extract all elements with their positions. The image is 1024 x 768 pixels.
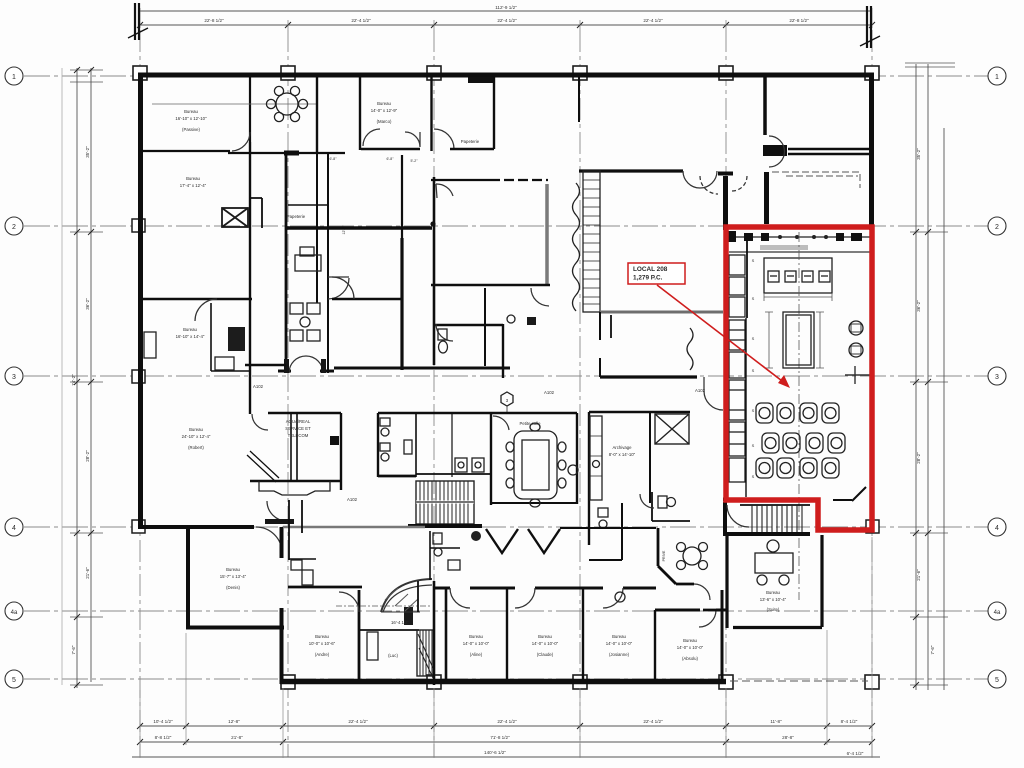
svg-text:28'-2": 28'-2" — [85, 450, 90, 462]
svg-text:10'-4 1/2": 10'-4 1/2" — [153, 719, 173, 724]
svg-text:17'-4" x 12'-4": 17'-4" x 12'-4" — [180, 183, 207, 188]
svg-text:S: S — [752, 443, 755, 448]
svg-text:S: S — [752, 408, 755, 413]
svg-text:A102: A102 — [544, 390, 555, 395]
svg-text:16'-10" x 14'-4": 16'-10" x 14'-4" — [176, 334, 205, 339]
svg-text:1: 1 — [995, 74, 999, 81]
svg-text:Bureau: Bureau — [184, 109, 198, 114]
svg-text:35'-2": 35'-2" — [916, 148, 921, 160]
svg-text:4: 4 — [995, 525, 999, 532]
svg-text:2: 2 — [12, 224, 16, 231]
svg-text:6'-8": 6'-8" — [387, 157, 395, 161]
svg-text:(Aline): (Aline) — [470, 652, 483, 657]
svg-text:4a: 4a — [11, 610, 18, 616]
svg-text:Bureau: Bureau — [226, 567, 240, 572]
svg-text:S: S — [752, 368, 755, 373]
svg-text:3: 3 — [995, 374, 999, 381]
svg-text:LOCAL 208: LOCAL 208 — [633, 266, 668, 273]
svg-text:14'-0" x 10'-0": 14'-0" x 10'-0" — [606, 641, 633, 646]
svg-text:74'-2": 74'-2" — [71, 374, 76, 386]
svg-text:112'-9 1/2": 112'-9 1/2" — [495, 5, 517, 10]
svg-text:11'-8": 11'-8" — [770, 719, 782, 724]
svg-text:(Josianne): (Josianne) — [609, 652, 630, 657]
svg-text:14'-0" x 10'-0": 14'-0" x 10'-0" — [677, 645, 704, 650]
svg-text:Bureau: Bureau — [189, 427, 203, 432]
svg-text:6'-4 1/2": 6'-4 1/2" — [847, 751, 864, 756]
svg-text:1,279 P.C.: 1,279 P.C. — [633, 275, 663, 282]
svg-text:S: S — [752, 336, 755, 341]
svg-text:Bureau: Bureau — [377, 101, 391, 106]
svg-text:22'-4 1/2": 22'-4 1/2" — [497, 18, 517, 23]
svg-text:Bureau: Bureau — [186, 176, 200, 181]
svg-text:22'-4 1/2": 22'-4 1/2" — [348, 719, 368, 724]
svg-text:22'-4 1/2": 22'-4 1/2" — [643, 18, 663, 23]
svg-text:(Absolu): (Absolu) — [682, 656, 699, 661]
svg-text:A102: A102 — [347, 497, 358, 502]
svg-text:36'-2": 36'-2" — [916, 300, 921, 312]
svg-text:SERVICE ET: SERVICE ET — [285, 426, 311, 431]
svg-text:14'-0" x 10'-0": 14'-0" x 10'-0" — [532, 641, 559, 646]
svg-text:28'-8": 28'-8" — [782, 735, 794, 740]
svg-text:(Andre): (Andre) — [315, 652, 330, 657]
svg-text:1: 1 — [12, 74, 16, 81]
svg-text:16'-10" x 12'-10": 16'-10" x 12'-10" — [175, 116, 207, 121]
svg-text:22'-8 1/2": 22'-8 1/2" — [204, 18, 224, 23]
svg-text:(Luc): (Luc) — [388, 653, 398, 658]
svg-text:22'-4 1/2": 22'-4 1/2" — [351, 18, 371, 23]
svg-text:21'-6": 21'-6" — [85, 567, 90, 579]
svg-text:3: 3 — [12, 374, 16, 381]
svg-text:(Robert): (Robert) — [188, 445, 204, 450]
svg-text:AQUA/REAL: AQUA/REAL — [286, 419, 311, 424]
svg-text:14'-0" x 10'-0": 14'-0" x 10'-0" — [463, 641, 490, 646]
svg-text:5: 5 — [995, 677, 999, 684]
svg-text:Archivage: Archivage — [612, 445, 632, 450]
svg-text:S: S — [752, 474, 755, 479]
svg-text:24'-10" x 12'-4": 24'-10" x 12'-4" — [182, 434, 211, 439]
svg-text:S: S — [752, 296, 755, 301]
svg-text:21'-8": 21'-8" — [231, 735, 243, 740]
svg-text:Bureau: Bureau — [469, 634, 483, 639]
svg-text:12'-8": 12'-8" — [228, 719, 240, 724]
svg-text:Bureau: Bureau — [315, 634, 329, 639]
svg-text:16'-4 1/2": 16'-4 1/2" — [391, 620, 410, 625]
svg-text:71'-8 1/2": 71'-8 1/2" — [490, 735, 510, 740]
svg-text:35'-2": 35'-2" — [85, 146, 90, 158]
svg-text:13'-6" x 10'-4": 13'-6" x 10'-4" — [760, 597, 787, 602]
svg-text:(Claude): (Claude) — [537, 652, 554, 657]
svg-text:Papeterie: Papeterie — [287, 214, 306, 219]
svg-text:8'-4 1/2": 8'-4 1/2" — [841, 719, 858, 724]
svg-text:15'-7" x 13'-4": 15'-7" x 13'-4" — [220, 574, 247, 579]
svg-text:5: 5 — [12, 677, 16, 684]
svg-text:8'-0" x 14'-10": 8'-0" x 14'-10" — [609, 452, 636, 457]
svg-text:4: 4 — [12, 525, 16, 532]
svg-text:7'-6": 7'-6" — [71, 645, 76, 654]
svg-text:Bureau: Bureau — [183, 327, 197, 332]
svg-text:Bureau: Bureau — [538, 634, 552, 639]
svg-text:10'-0" x 10'-6": 10'-0" x 10'-6" — [309, 641, 336, 646]
svg-text:7'-6": 7'-6" — [930, 645, 935, 654]
svg-text:6'-8": 6'-8" — [330, 157, 338, 161]
svg-text:(Passive): (Passive) — [182, 127, 200, 132]
svg-text:Bureau: Bureau — [612, 634, 626, 639]
svg-text:2: 2 — [995, 224, 999, 231]
svg-text:(Suite): (Suite) — [767, 607, 780, 612]
svg-text:22'-8 1/2": 22'-8 1/2" — [789, 18, 809, 23]
svg-text:21'-6": 21'-6" — [916, 569, 921, 581]
svg-text:8'-8 1/2": 8'-8 1/2" — [155, 735, 172, 740]
svg-text:Papeterie: Papeterie — [461, 139, 480, 144]
svg-text:22'-4 1/2": 22'-4 1/2" — [643, 719, 663, 724]
svg-text:28'-2": 28'-2" — [916, 452, 921, 464]
svg-text:36'-2": 36'-2" — [85, 298, 90, 310]
svg-text:140'-6 1/2": 140'-6 1/2" — [484, 750, 506, 755]
svg-text:Bureau: Bureau — [766, 590, 780, 595]
svg-text:S: S — [752, 258, 755, 263]
svg-text:TELECOM: TELECOM — [288, 433, 309, 438]
svg-text:PRIVE: PRIVE — [662, 550, 666, 561]
svg-text:5'-2": 5'-2" — [411, 159, 419, 163]
svg-text:(Marco): (Marco) — [377, 119, 392, 124]
svg-text:Bureau: Bureau — [683, 638, 697, 643]
svg-text:A102: A102 — [253, 384, 264, 389]
svg-text:22'-4 1/2": 22'-4 1/2" — [497, 719, 517, 724]
svg-text:14'-0" x 12'-9": 14'-0" x 12'-9" — [371, 108, 398, 113]
svg-text:4a: 4a — [994, 610, 1001, 616]
svg-text:(Denis): (Denis) — [226, 585, 240, 590]
